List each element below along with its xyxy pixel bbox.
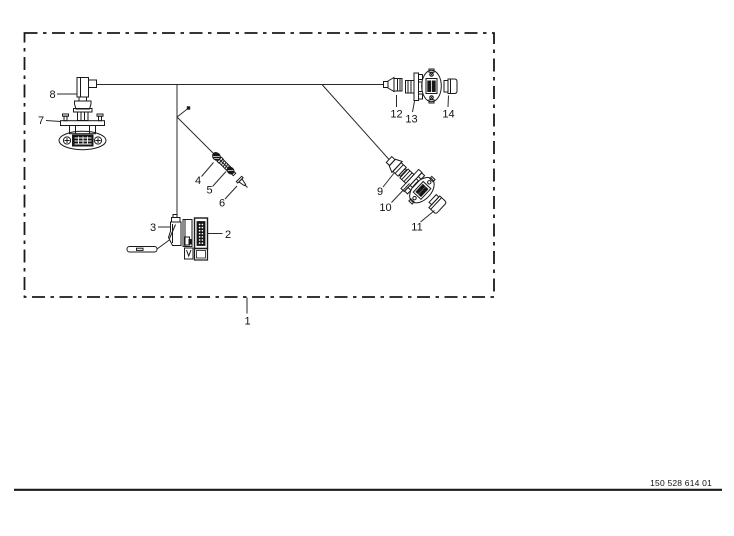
diagram-canvas: 1 2 3 4 5 6 7 8 9 10 11 12 13 14 150 528… — [0, 0, 734, 536]
callout-label-9: 9 — [377, 186, 383, 198]
callout-labels: 1 2 3 4 5 6 7 8 9 10 11 12 13 14 — [38, 89, 455, 328]
callout-label-11: 11 — [411, 222, 422, 234]
callout-label-10: 10 — [379, 202, 391, 214]
callout-label-7: 7 — [38, 115, 44, 127]
part-7-flange-socket — [59, 114, 106, 150]
part-6-screw-terminal — [236, 176, 250, 190]
callout-label-5: 5 — [206, 185, 212, 197]
callout-label-6: 6 — [219, 198, 225, 210]
branch-terminal-dot — [187, 106, 190, 109]
callout-label-14: 14 — [442, 109, 454, 121]
part-3-connector-housing — [169, 215, 182, 246]
part-13-oval-flange — [422, 69, 442, 103]
part-11-protective-cap — [426, 194, 446, 215]
part-8-elbow-connector — [74, 78, 97, 121]
callout-label-12: 12 — [390, 109, 402, 121]
callout-label-8: 8 — [49, 89, 55, 101]
callout-label-1: 1 — [244, 316, 250, 328]
callout-label-4: 4 — [195, 175, 201, 187]
part-3-housing-shell — [183, 220, 193, 260]
part-13-ribbed-connector — [406, 73, 423, 101]
parts-diagram-page: 1 2 3 4 5 6 7 8 9 10 11 12 13 14 150 528… — [0, 0, 734, 536]
drawing-number: 150 528 614 01 — [650, 478, 712, 488]
callout-label-3: 3 — [150, 222, 156, 234]
callout-label-13: 13 — [405, 114, 417, 126]
harness-cable-lines — [97, 85, 390, 217]
cable-marker-strip — [127, 240, 170, 253]
assembly-boundary-border — [25, 33, 495, 297]
callout-label-2: 2 — [225, 229, 231, 241]
part-12-cone-plug — [384, 78, 403, 92]
part-14-protective-cap — [444, 79, 457, 94]
part-2-pin-connector — [195, 218, 208, 260]
